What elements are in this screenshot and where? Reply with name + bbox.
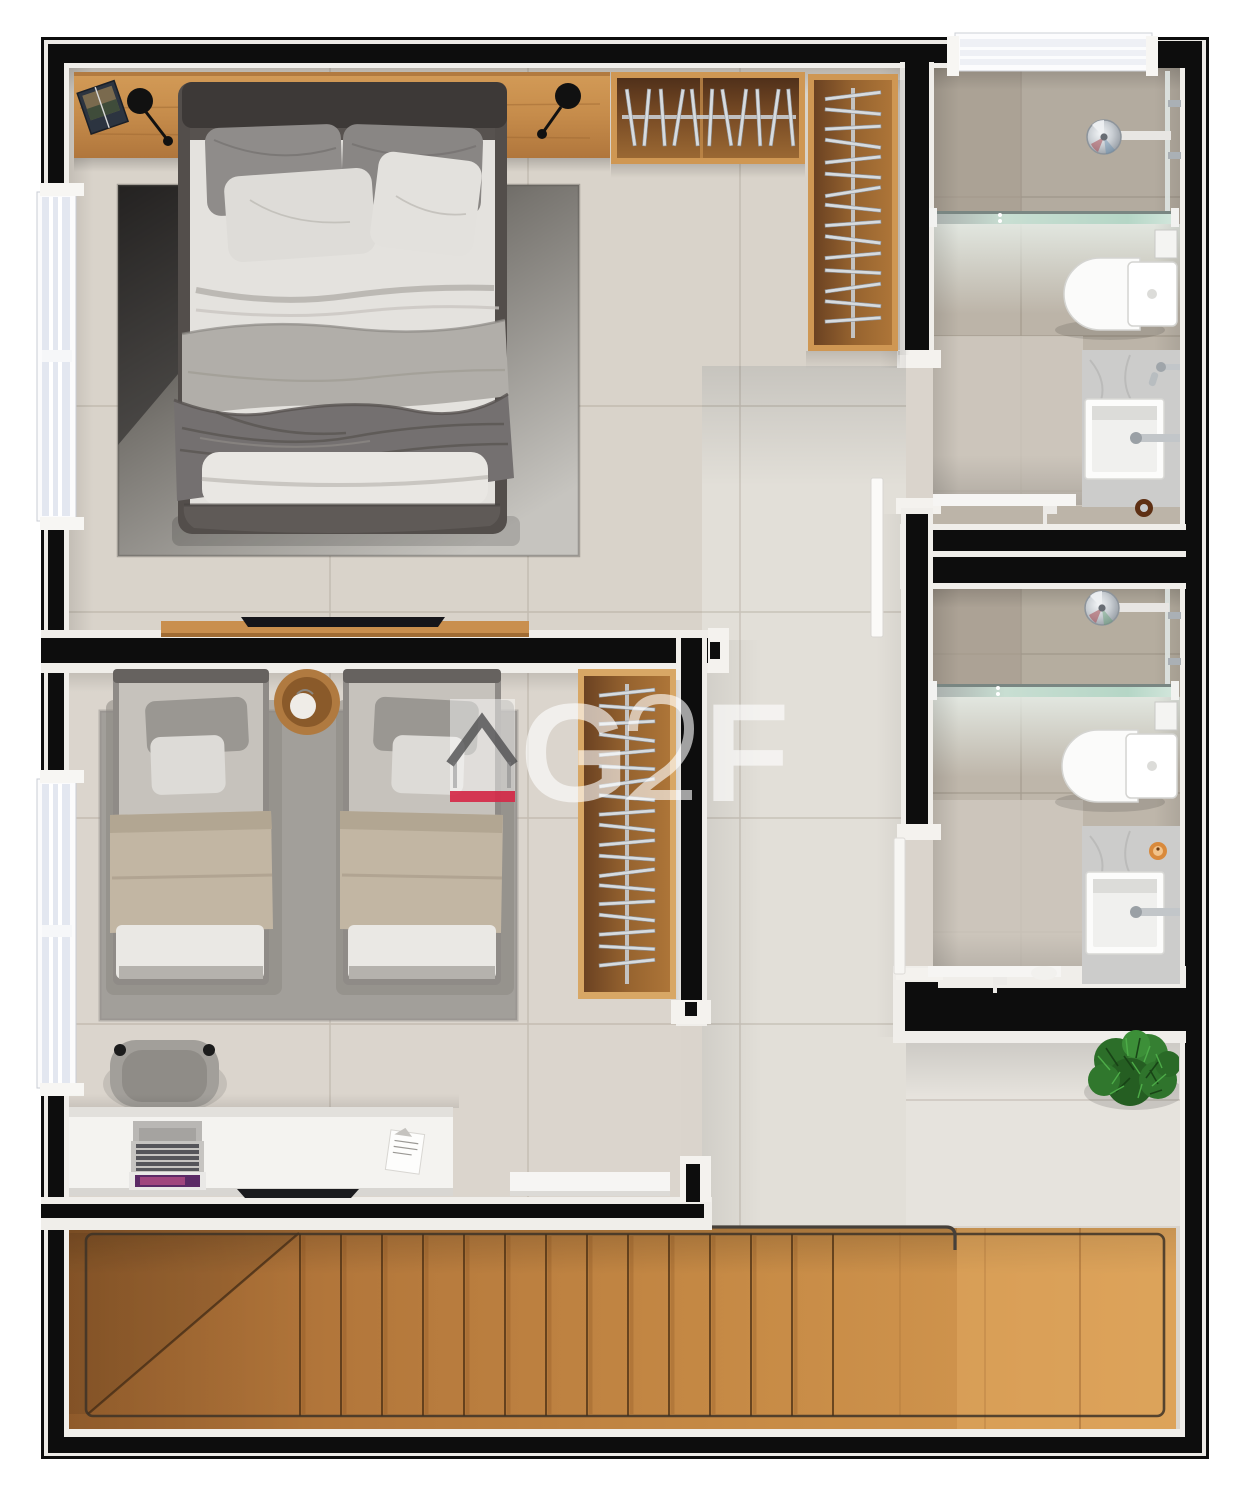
svg-text:G: G bbox=[520, 674, 629, 831]
svg-text:F: F bbox=[704, 674, 790, 831]
